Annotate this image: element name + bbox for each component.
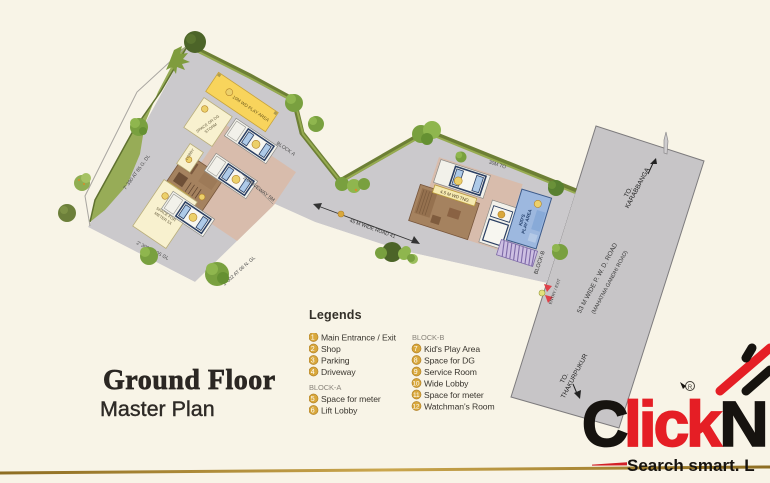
svg-text:4: 4 bbox=[311, 369, 315, 376]
svg-text:1: 1 bbox=[311, 335, 315, 342]
svg-text:Main Entrance / Exit: Main Entrance / Exit bbox=[321, 333, 397, 343]
svg-text:6: 6 bbox=[311, 408, 315, 415]
svg-text:12: 12 bbox=[412, 404, 420, 411]
svg-text:3: 3 bbox=[311, 358, 315, 365]
svg-text:Lift Lobby: Lift Lobby bbox=[321, 406, 358, 416]
svg-text:Kid's Play Area: Kid's Play Area bbox=[424, 344, 480, 354]
svg-text:Shop: Shop bbox=[321, 344, 341, 354]
svg-text:10: 10 bbox=[412, 381, 420, 388]
svg-text:9: 9 bbox=[414, 369, 418, 376]
svg-text:Search smart. L: Search smart. L bbox=[627, 456, 755, 475]
svg-text:2: 2 bbox=[311, 346, 315, 353]
svg-text:Driveway: Driveway bbox=[321, 367, 356, 377]
svg-text:8: 8 bbox=[414, 358, 418, 365]
svg-text:7: 7 bbox=[414, 346, 418, 353]
svg-text:lick: lick bbox=[624, 388, 722, 460]
svg-text:N: N bbox=[719, 388, 769, 460]
svg-text:C: C bbox=[582, 388, 628, 460]
svg-text:Parking: Parking bbox=[321, 356, 350, 366]
svg-text:Space for DG: Space for DG bbox=[424, 356, 475, 366]
svg-text:BLOCK-A: BLOCK-A bbox=[309, 383, 341, 392]
svg-text:11: 11 bbox=[413, 392, 420, 399]
svg-text:Space for meter: Space for meter bbox=[424, 390, 484, 400]
svg-text:Watchman's Room: Watchman's Room bbox=[424, 402, 495, 412]
svg-text:Space for meter: Space for meter bbox=[321, 394, 381, 404]
svg-text:Wide Lobby: Wide Lobby bbox=[424, 379, 469, 389]
svg-text:5: 5 bbox=[311, 396, 315, 403]
svg-text:Service Room: Service Room bbox=[424, 367, 477, 377]
svg-text:BLOCK-B: BLOCK-B bbox=[412, 333, 444, 342]
